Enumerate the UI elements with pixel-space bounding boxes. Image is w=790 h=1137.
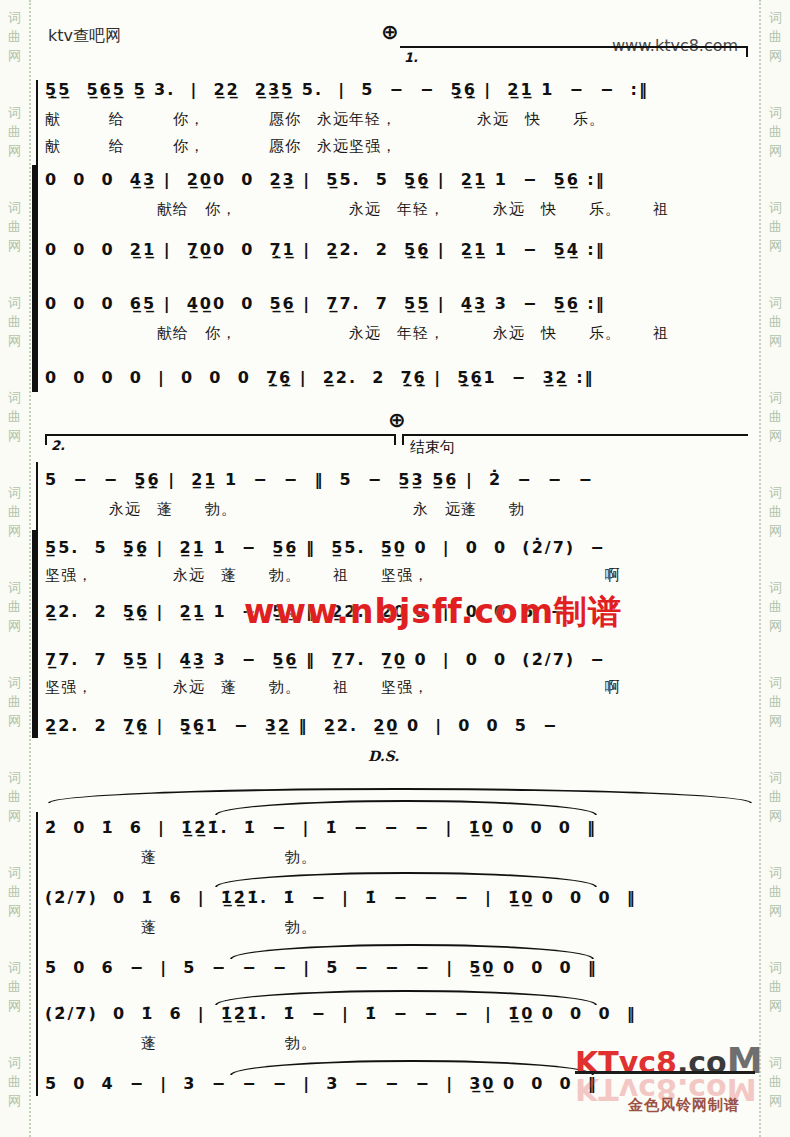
- lyrics-line: 蓬 勃。: [45, 848, 757, 867]
- notation-line: 2̲2. 2 7̣̲6̣̲ | 5̣̲6̣̲1 − 3̲2̲ ‖ 2̲2. 2̲…: [45, 716, 757, 735]
- volta2-label: 2.: [51, 438, 65, 453]
- volta1-bracket: [400, 46, 748, 57]
- notation-line: 5 0 6 − | 5 − − − | 5 − − − | 5̲0̲ 0 0 0…: [45, 958, 757, 977]
- system3-left-barline: [36, 812, 38, 1096]
- left-border-strip: 词 曲 网 词 曲 网 词 曲 网 词 曲 网 词 曲 网 词 曲 网 词 曲 …: [0, 0, 31, 1137]
- lyrics-line: 献给 你， 永远 年轻， 永远 快 乐。 祖: [45, 200, 757, 219]
- right-border-text: 词 曲 网 词 曲 网 词 曲 网 词 曲 网 词 曲 网 词 曲 网 词 曲 …: [761, 0, 790, 1110]
- lyrics-line: 蓬 勃。: [45, 918, 757, 937]
- notation-line: 0 0 0 6̲5̲ | 4̲0̲0 0 5̲6̲ | 7̲7. 7 5̲5̲ …: [45, 294, 757, 313]
- notation-line: 0 0 0 4̲3̲ | 2̲0̲0 0 2̲3̲ | 5̲5. 5 5̣̲6̣…: [45, 170, 757, 189]
- right-border-strip: 词 曲 网 词 曲 网 词 曲 网 词 曲 网 词 曲 网 词 曲 网 词 曲 …: [759, 0, 790, 1137]
- notation-line: (2̇/7) 0 1̇ 6 | 1̲̇2̲̇1̇. 1̇ − | 1̇ − − …: [45, 1004, 757, 1023]
- lyrics-line: 永远 蓬 勃。 永 远蓬 勃: [45, 500, 757, 519]
- notation-line: 5̲5. 5 5̣̲6̣̲ | 2̲1̲ 1 − 5̲6̲ ‖ 5̲5. 5̲0…: [45, 538, 757, 557]
- phrase-arc: [215, 872, 597, 887]
- notation-line: 5̣̲5̲ 5̲6̲5̲ 5̲ 3. | 2̲2̲ 2̲3̲5̲ 5. | 5 …: [45, 80, 757, 99]
- lyrics-line: 献 给 你， 愿你 永远坚强，: [45, 137, 757, 156]
- system1-voice-bracket: [32, 165, 36, 392]
- system1-left-barline: [36, 80, 38, 392]
- notation-line: 7̲7. 7 5̲5̲ | 4̲3̲ 3 − 5̲6̲ ‖ 7̲7. 7̲0̲ …: [45, 650, 757, 669]
- left-border-text: 词 曲 网 词 曲 网 词 曲 网 词 曲 网 词 曲 网 词 曲 网 词 曲 …: [0, 0, 29, 1110]
- notation-line: 0 0 0 0 | 0 0 0 7̣̲6̣̲ | 2̲2. 2 7̣̲6̣̲ |…: [45, 368, 757, 387]
- volta1-label: 1.: [404, 50, 418, 65]
- system2-left-barline: [36, 462, 38, 738]
- site-name-left: ktv查吧网: [48, 26, 121, 47]
- coda-icon: ⊕: [388, 408, 406, 432]
- coda-icon: ⊕: [381, 20, 399, 44]
- notation-line: 0 0 0 2̲1̲ | 7̣̲0̲0 0 7̣̲1̲ | 2̲2. 2 5̣̲…: [45, 240, 757, 259]
- notation-line: 5 − − 5̣̲6̣̲ | 2̲1̲ 1 − − ‖ 5 − 5̲3̲ 5̲6…: [45, 470, 757, 489]
- volta2-bracket: [45, 434, 396, 445]
- notation-line: 2̇ 0 1̇ 6 | 1̲̇2̲̇1̇. 1̇ − | 1̇ − − − | …: [45, 818, 757, 837]
- lyrics-line: 坚强， 永远 蓬 勃。 祖 坚强， 啊: [45, 678, 757, 697]
- lyrics-line: 坚强， 永远 蓬 勃。 祖 坚强， 啊: [45, 566, 757, 585]
- phrase-arc: [215, 990, 597, 1005]
- lyrics-line: 献给 你， 永远 年轻， 永远 快 乐。 祖: [45, 324, 757, 343]
- lyrics-line: 献 给 你， 愿你 永远年轻， 永远 快 乐。: [45, 110, 757, 129]
- score-page: 词 曲 网 词 曲 网 词 曲 网 词 曲 网 词 曲 网 词 曲 网 词 曲 …: [0, 0, 790, 1137]
- phrase-arc: [230, 944, 594, 959]
- notation-line: (2̇/7) 0 1̇ 6 | 1̲̇2̲̇1̇. 1̇ − | 1̇ − − …: [45, 888, 757, 907]
- system2-voice-bracket: [32, 530, 36, 738]
- ending-section-label: 结束句: [410, 438, 455, 457]
- center-watermark: www.nbjsff.com制谱: [244, 590, 622, 635]
- ds-label: D.S.: [368, 748, 399, 764]
- maker-credit: 金色风铃网制谱: [628, 1096, 740, 1115]
- phrase-arc: [230, 1060, 594, 1075]
